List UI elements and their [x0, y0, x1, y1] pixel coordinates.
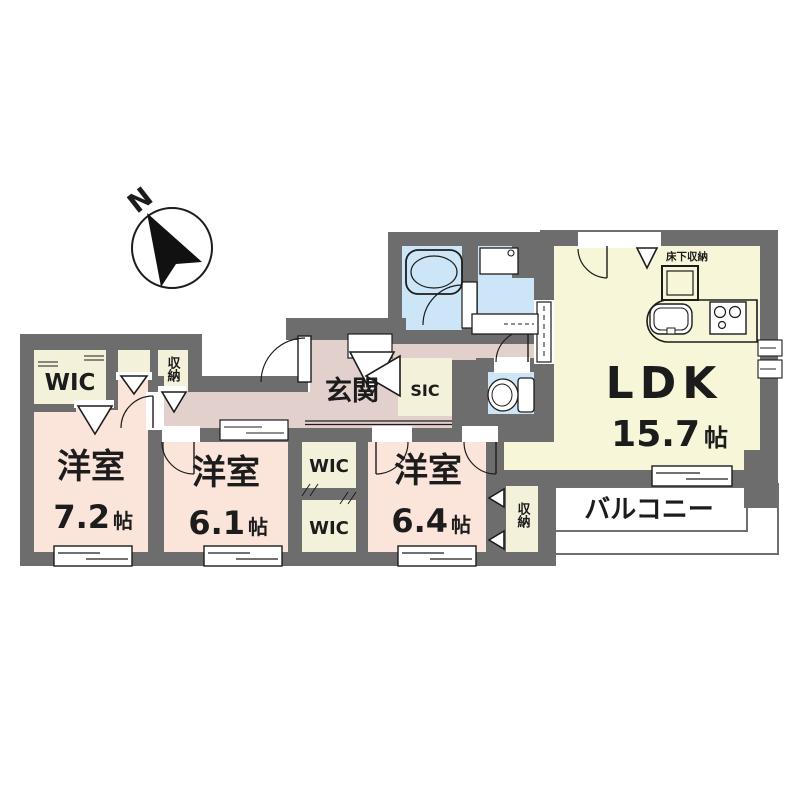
entrance-door	[298, 336, 311, 382]
underfloor-storage-label: 床下収納	[666, 250, 708, 263]
ldk-size-unit: 帖	[704, 424, 728, 452]
bedroom1-size-unit: 帖	[113, 509, 133, 533]
bedroom2-label: 洋室	[192, 453, 260, 493]
wic-upper-label: WIC	[309, 456, 349, 477]
bedroom3-label: 洋室	[394, 451, 462, 491]
toilet-icon	[488, 378, 534, 412]
kitchen-sink-icon	[650, 304, 692, 334]
stove-icon	[710, 302, 746, 334]
ldk-label: LDK	[606, 358, 723, 409]
compass-north-label: N	[122, 181, 159, 219]
compass-icon: N	[122, 181, 212, 288]
bedroom1-size-value: 7.2	[53, 498, 110, 536]
storage-bedroom3-label: 収納	[515, 502, 531, 529]
bedroom2-size-value: 6.1	[188, 504, 245, 542]
bedroom1-window	[54, 546, 132, 566]
floor-plan: N	[0, 0, 800, 800]
bedroom2-size-unit: 帖	[248, 515, 268, 539]
bedroom3-size-unit: 帖	[451, 513, 471, 537]
ldk-size-value: 15.7	[611, 414, 700, 455]
ldk-door-opening	[578, 232, 640, 248]
balcony-label: バルコニー	[584, 495, 713, 525]
bedroom2-door-opening	[162, 426, 200, 442]
storage-hall-label: 収納	[165, 356, 181, 383]
bedroom1-door-opening	[146, 392, 164, 430]
ldk-balcony-window	[652, 466, 732, 486]
bedroom2-window	[204, 546, 282, 566]
toilet-door-opening	[494, 357, 530, 373]
washbasin-icon	[472, 314, 538, 334]
bedroom3-window	[398, 546, 476, 566]
bedroom1-label: 洋室	[57, 447, 125, 487]
sic-label: SIC	[410, 381, 439, 400]
entrance-label: 玄関	[325, 375, 379, 407]
bedroom3-door-opening	[372, 426, 412, 442]
bedroom2-closet	[220, 420, 288, 440]
wic-lower-label: WIC	[309, 518, 349, 539]
washing-machine-icon	[480, 248, 518, 274]
bedroom3-size-value: 6.4	[391, 502, 448, 540]
floor-plan-page: N	[0, 0, 800, 800]
wic-main-label: WIC	[45, 370, 96, 396]
